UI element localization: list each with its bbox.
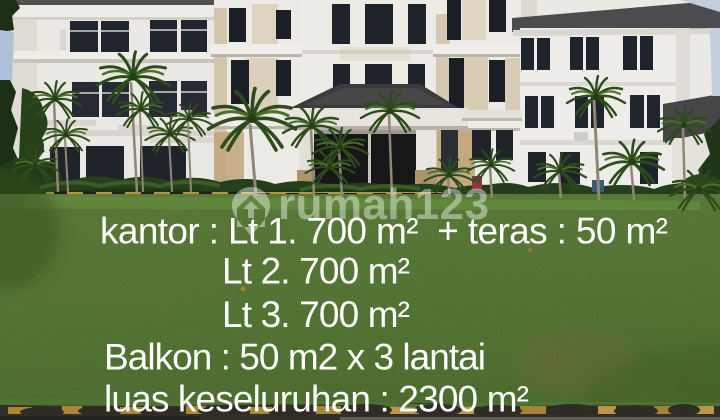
svg-text:luas keseluruhan : 2300 m²: luas keseluruhan : 2300 m² [104, 379, 529, 420]
svg-text:Lt 2. 700 m²: Lt 2. 700 m² [222, 251, 410, 292]
svg-text:kantor : Lt 1. 700 m² + teras: kantor : Lt 1. 700 m² + teras : 50 m² [100, 211, 668, 252]
svg-text:Balkon : 50 m2 x 3 lantai: Balkon : 50 m2 x 3 lantai [104, 337, 486, 378]
svg-text:Lt 3. 700 m²: Lt 3. 700 m² [222, 294, 410, 335]
